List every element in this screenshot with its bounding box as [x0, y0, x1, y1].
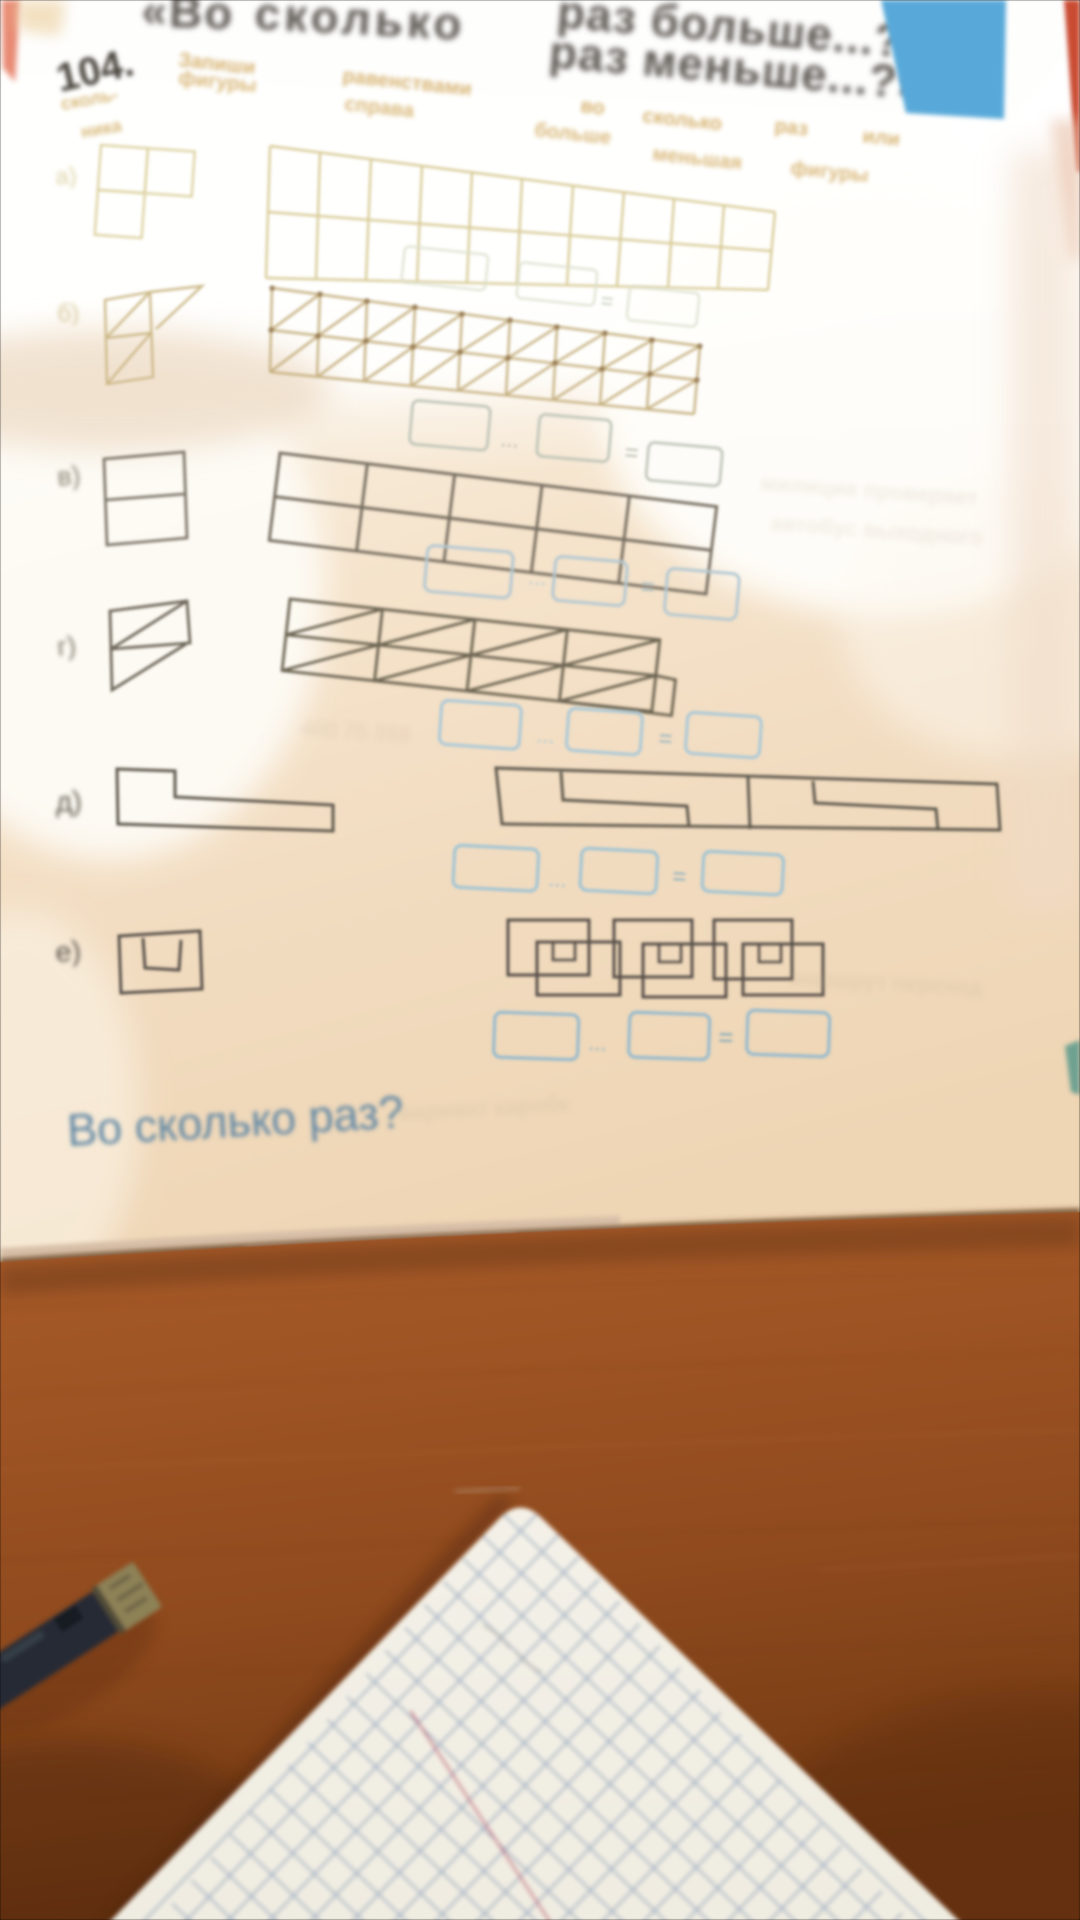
svg-text:...: ... [548, 866, 568, 892]
svg-text:=: = [599, 288, 614, 314]
svg-text:е): е) [54, 935, 82, 969]
svg-text:...: ... [588, 1030, 607, 1056]
svg-text:...: ... [500, 426, 520, 453]
svg-text:или: или [861, 125, 900, 151]
svg-text:=: = [658, 725, 674, 753]
svg-text:раз: раз [773, 115, 809, 140]
svg-text:=: = [672, 863, 687, 891]
svg-text:в): в) [56, 460, 82, 492]
svg-text:г): г) [56, 630, 77, 662]
svg-text:...: ... [528, 564, 548, 591]
svg-text:«Во: «Во [141, 0, 236, 39]
svg-text:...: ... [536, 722, 556, 748]
svg-text:=: = [623, 439, 639, 467]
svg-text:б): б) [56, 299, 80, 328]
svg-text:=: = [718, 1022, 734, 1053]
svg-text:а): а) [54, 162, 78, 191]
svg-text:=: = [639, 573, 655, 601]
svg-text:д): д) [54, 785, 83, 819]
svg-text:во: во [579, 95, 605, 119]
